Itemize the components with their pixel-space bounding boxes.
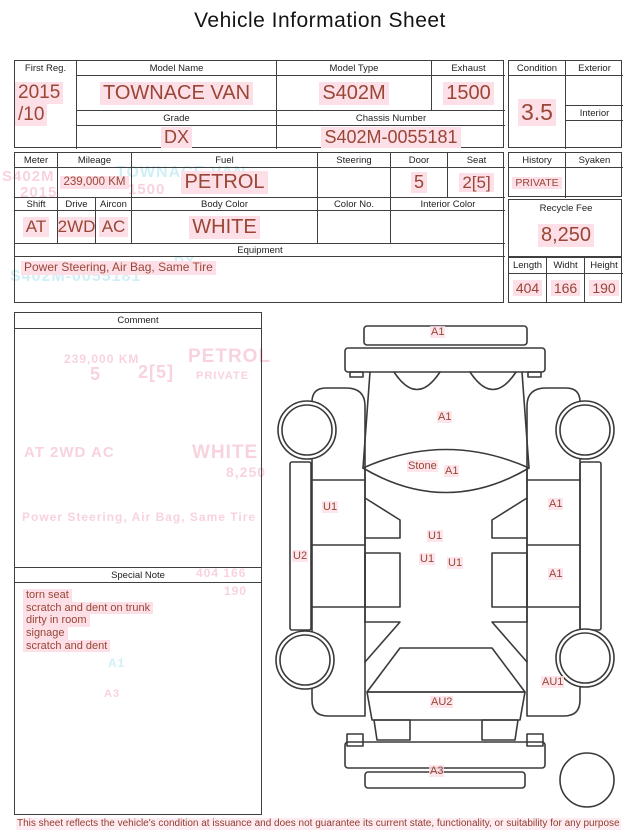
condition-value: 3.5 (509, 76, 566, 149)
special-note-item: torn seat (23, 589, 153, 602)
special-note-item: scratch and dent (23, 640, 153, 653)
shift-value: AT (15, 211, 58, 244)
mileage-value: 239,000 KM (58, 168, 132, 198)
comment-box: Comment (14, 312, 262, 568)
interior-value (566, 121, 623, 149)
height-label: Height (585, 258, 623, 274)
diagram-mark: U1 (427, 530, 443, 542)
spec-table: Meter Mileage Fuel Steering Door Seat 23… (14, 152, 504, 303)
comment-label: Comment (15, 313, 261, 329)
model-type-label: Model Type (277, 61, 432, 76)
diagram-mark: A1 (548, 498, 563, 510)
syaken-label: Syaken (566, 153, 623, 168)
history-table: History Syaken PRIVATE (508, 152, 622, 197)
vehicle-information-sheet: Vehicle Information Sheet S402M2015TOWNA… (0, 0, 640, 835)
special-note-label: Special Note (15, 568, 261, 583)
mileage-label: Mileage (58, 153, 132, 168)
recycle-fee-table: Recycle Fee 8,250 (508, 199, 622, 257)
equipment-label: Equipment (15, 244, 505, 257)
car-damage-diagram: A1A1StoneA1U1A1U1U1U1U2A1AU1AU2A3 (270, 310, 640, 810)
diagram-mark: Stone (407, 460, 438, 472)
body-color-label: Body Color (132, 198, 318, 211)
aircon-label: Aircon (96, 198, 132, 211)
length-label: Length (509, 258, 547, 274)
diagram-mark: A1 (548, 568, 563, 580)
exhaust-label: Exhaust (432, 61, 505, 76)
interior-label: Interior (566, 106, 623, 121)
history-label: History (509, 153, 566, 168)
model-name-label: Model Name (77, 61, 277, 76)
exhaust-value: 1500 (432, 76, 505, 111)
exterior-label: Exterior (566, 61, 623, 76)
interior-color-label: Interior Color (391, 198, 505, 211)
door-value: 5 (391, 168, 448, 198)
condition-table: Condition 3.5 Exterior Interior (508, 60, 622, 148)
length-value: 404 (509, 274, 547, 302)
door-label: Door (391, 153, 448, 168)
color-no-value (318, 211, 391, 244)
color-no-label: Color No. (318, 198, 391, 211)
shift-label: Shift (15, 198, 58, 211)
condition-label: Condition (509, 61, 566, 76)
chassis-number-label: Chassis Number (277, 111, 505, 126)
diagram-mark: U1 (419, 553, 435, 565)
drive-value: 2WD (58, 211, 96, 244)
seat-value: 2[5] (448, 168, 505, 198)
steering-value (318, 168, 391, 198)
width-label: Widht (547, 258, 585, 274)
meter-label: Meter (15, 153, 58, 168)
chassis-number-value: S402M-0055181 (277, 126, 505, 149)
diagram-mark: U1 (322, 501, 338, 513)
page-title: Vehicle Information Sheet (0, 9, 640, 33)
special-note-box: Special Note torn seat scratch and dent … (14, 568, 262, 815)
dimensions-table: Length Widht Height 404 166 190 (508, 257, 622, 303)
diagram-mark: A1 (444, 465, 459, 477)
special-note-item: signage (23, 627, 153, 640)
fuel-label: Fuel (132, 153, 318, 168)
special-note-item: dirty in room (23, 614, 153, 627)
interior-color-value (391, 211, 505, 244)
steering-label: Steering (318, 153, 391, 168)
diagram-mark: A3 (429, 765, 444, 777)
special-note-item: scratch and dent on trunk (23, 602, 153, 615)
exterior-value (566, 76, 623, 106)
model-name-value: TOWNACE VAN (77, 76, 277, 111)
diagram-mark: U2 (292, 550, 308, 562)
diagram-mark: A1 (430, 326, 445, 338)
fuel-value: PETROL (132, 168, 318, 198)
footer-disclaimer: This sheet reflects the vehicle's condit… (16, 818, 626, 830)
aircon-value: AC (96, 211, 132, 244)
history-value: PRIVATE (509, 168, 566, 198)
equipment-value: Power Steering, Air Bag, Same Tire (15, 257, 505, 304)
recycle-fee-label: Recycle Fee (509, 202, 623, 214)
diagram-mark: A1 (437, 411, 452, 423)
diagram-mark: U1 (447, 557, 463, 569)
diagram-mark: AU1 (541, 676, 564, 688)
special-note-list: torn seat scratch and dent on trunk dirt… (23, 589, 153, 652)
meter-value (15, 168, 58, 198)
height-value: 190 (585, 274, 623, 302)
model-type-value: S402M (277, 76, 432, 111)
recycle-fee-value: 8,250 (509, 214, 623, 256)
body-color-value: WHITE (132, 211, 318, 244)
width-value: 166 (547, 274, 585, 302)
diagram-mark: AU2 (430, 696, 453, 708)
drive-label: Drive (58, 198, 96, 211)
syaken-value (566, 168, 623, 198)
grade-label: Grade (77, 111, 277, 126)
grade-value: DX (77, 126, 277, 149)
first-reg-label: First Reg. (15, 61, 77, 76)
first-reg-value: 2015 /10 (15, 76, 77, 149)
seat-label: Seat (448, 153, 505, 168)
top-info-table: First Reg. 2015 /10 Model Name TOWNACE V… (14, 60, 504, 148)
